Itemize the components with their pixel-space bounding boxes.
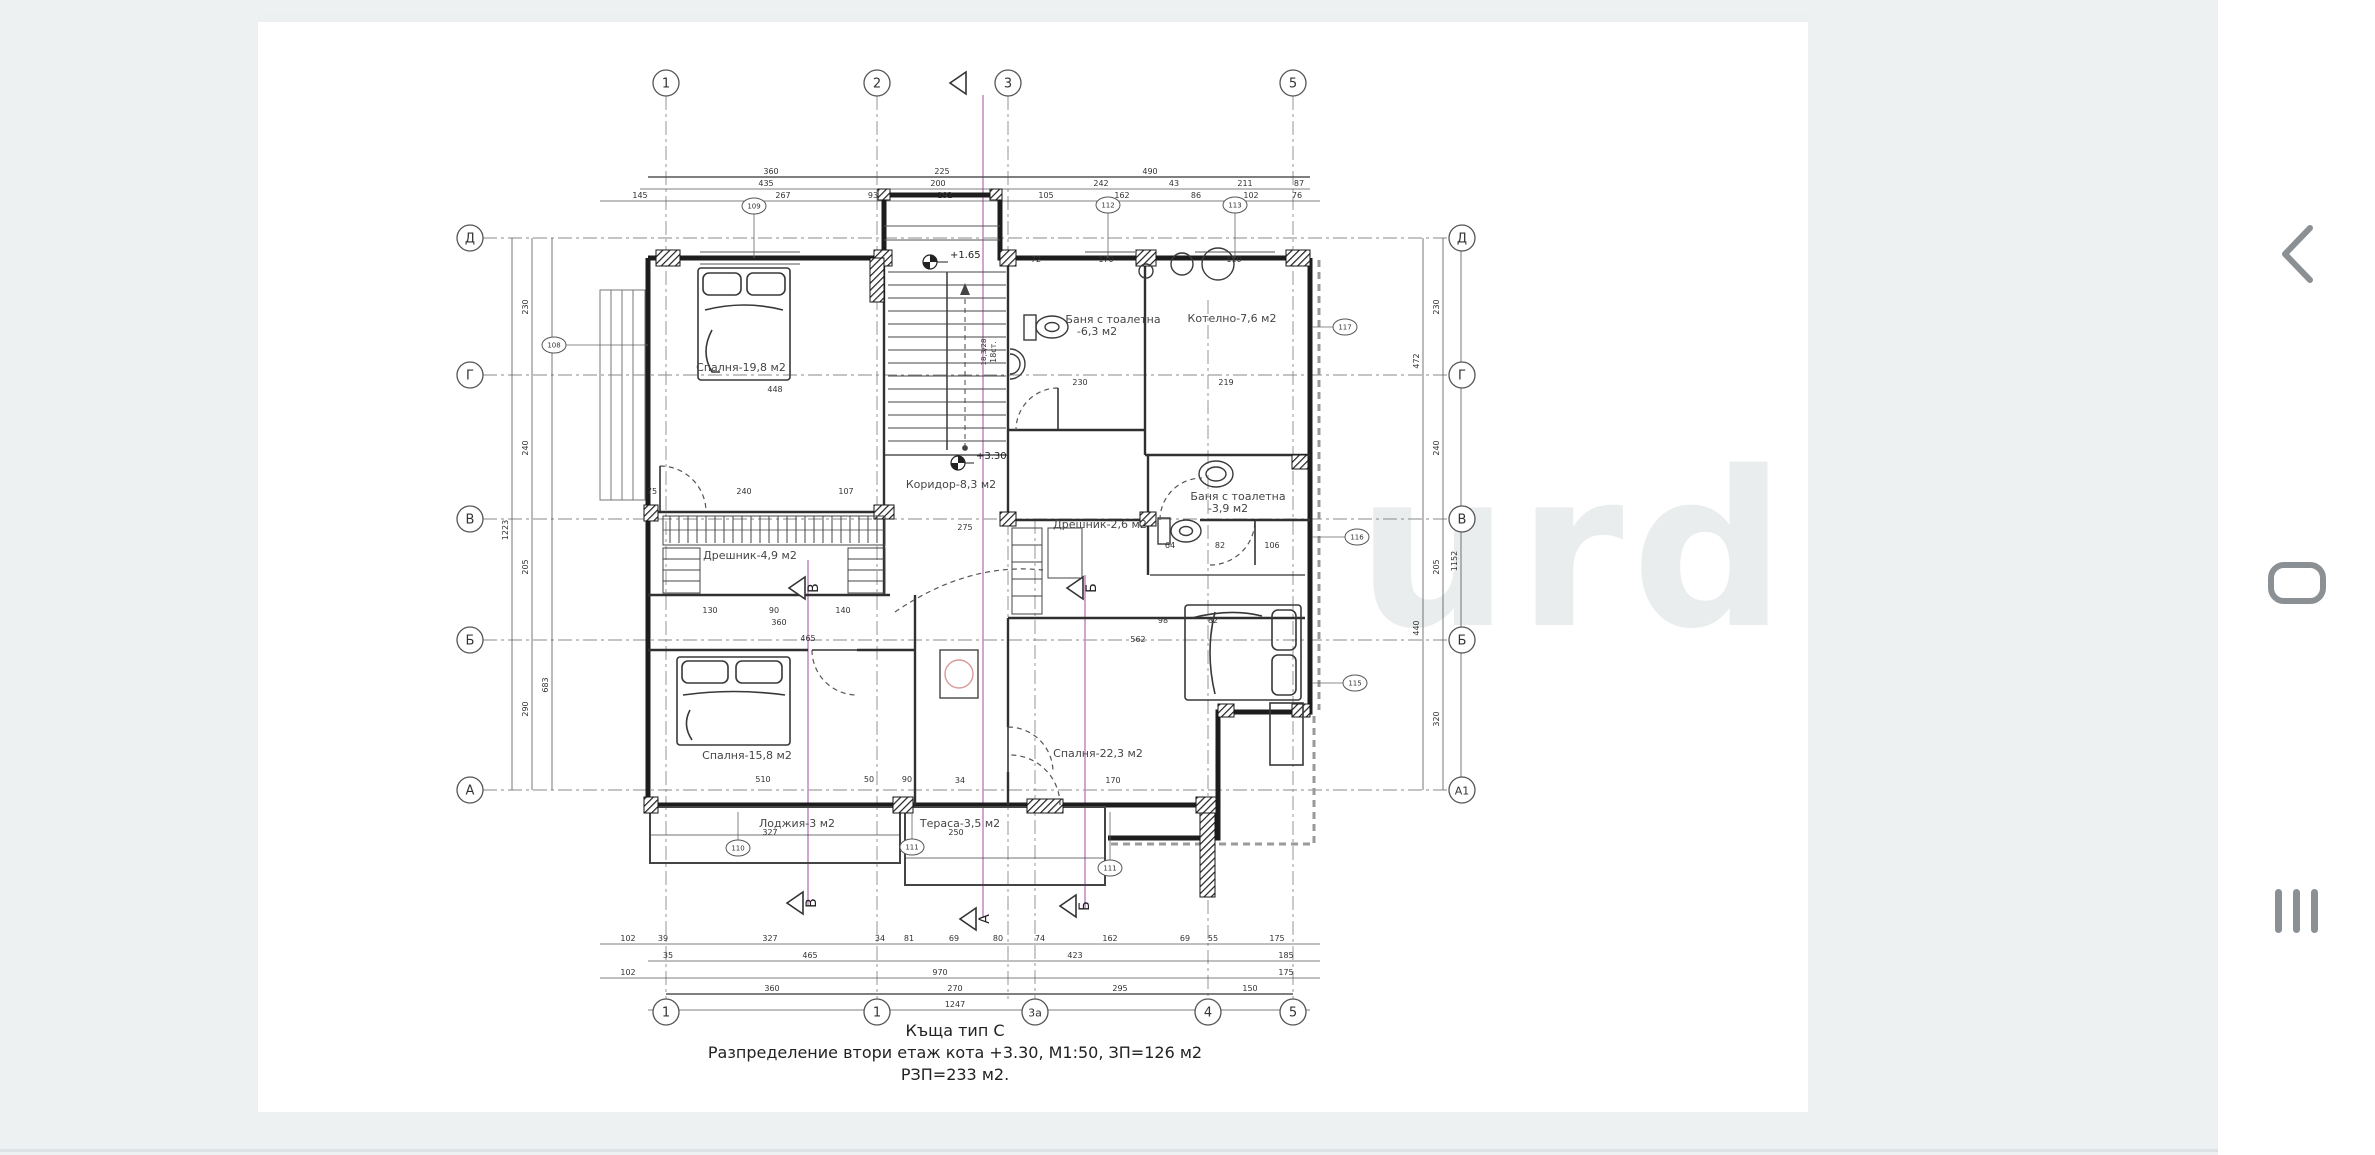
room-label: Спалня-19,8 м2	[696, 361, 786, 374]
dimension-label: 102	[1243, 191, 1258, 200]
dimension-label: 76	[1292, 191, 1302, 200]
left-side-detail	[600, 290, 645, 500]
svg-text:А1: А1	[1455, 785, 1470, 798]
svg-text:Д: Д	[465, 232, 475, 247]
dimension-label: 175	[1269, 934, 1284, 943]
grid-bubble: В	[457, 506, 483, 532]
dimension-label: 35	[663, 951, 673, 960]
room-label: Дрешник-4,9 м2	[703, 549, 797, 562]
dimension-label: 211	[1237, 179, 1252, 188]
dimension-label: 34	[955, 776, 965, 785]
dimension-label: 55	[1208, 934, 1218, 943]
grid-bubble: 1	[864, 999, 890, 1025]
dimension-label: 87	[1294, 179, 1304, 188]
svg-text:В: В	[466, 513, 475, 528]
svg-text:115: 115	[1348, 680, 1361, 688]
grid-bubble: 5	[1280, 999, 1306, 1025]
svg-text:Б: Б	[1084, 583, 1100, 593]
home-square-icon	[2267, 561, 2327, 605]
dimension-label: 295	[1112, 984, 1127, 993]
dimension-label: 1223	[501, 520, 510, 540]
window-tag: 110	[726, 812, 750, 856]
dimension-label: 205	[1432, 559, 1441, 574]
dimension-label: 970	[932, 968, 947, 977]
grid-bubble: 1	[653, 999, 679, 1025]
svg-text:5: 5	[1289, 1006, 1297, 1021]
drawing-caption: Къща тип С Разпределение втори етаж кота…	[708, 1021, 1202, 1084]
room-label: Коридор-8,3 м2	[906, 478, 996, 491]
window-tag: 109	[742, 198, 766, 258]
structural-columns	[644, 189, 1310, 897]
dimension-label: 105	[1038, 191, 1053, 200]
sink-bath-39	[1199, 461, 1233, 487]
dimension-label: 69	[949, 934, 959, 943]
closet-dressing-26	[1012, 528, 1082, 614]
room-label: Дрешник-2,6 м2	[1053, 518, 1147, 531]
dimension-label: 106	[1264, 541, 1279, 550]
dimension-label: 81	[904, 934, 914, 943]
section-marker: Б	[1060, 895, 1093, 917]
dimension-label: 327	[762, 828, 777, 837]
room-label: Котелно-7,6 м2	[1188, 312, 1277, 325]
dimension-label: 250	[948, 828, 963, 837]
balcony-outlines	[650, 807, 1105, 885]
svg-text:3: 3	[1004, 77, 1012, 92]
dimension-label: 74	[1035, 934, 1045, 943]
dimension-label: 448	[767, 385, 782, 394]
watermark-text: urd	[1357, 425, 1794, 676]
recents-bars-icon	[2271, 887, 2323, 935]
dimension-label: 107	[838, 487, 853, 496]
dimension-label: 360	[771, 618, 786, 627]
dimension-label: 465	[800, 634, 815, 643]
caption-area: РЗП=233 м2.	[901, 1065, 1009, 1084]
grid-bubble: 5	[1280, 70, 1306, 96]
grid-bubble: В	[1449, 506, 1475, 532]
svg-text:Д: Д	[1457, 232, 1467, 247]
dimension-label: 240	[736, 487, 751, 496]
dimension-label: 162	[1102, 934, 1117, 943]
svg-text:108: 108	[547, 342, 560, 350]
section-marker: В	[787, 892, 820, 914]
svg-text:+3.30: +3.30	[976, 451, 1007, 462]
svg-text:А: А	[977, 914, 993, 924]
grid-bubbles: 1235113а45ДГВБАДГВБА1	[457, 70, 1475, 1025]
svg-text:В: В	[1458, 513, 1467, 528]
svg-text:116: 116	[1350, 534, 1364, 542]
dimension-label: 290	[521, 701, 530, 716]
dimension-label: 440	[1412, 620, 1421, 635]
dimension-label: 230	[1072, 378, 1087, 387]
section-marker	[950, 72, 966, 94]
svg-text:В: В	[806, 583, 822, 593]
grid-lines	[483, 96, 1449, 999]
svg-text:109: 109	[747, 203, 760, 211]
svg-text:113: 113	[1228, 202, 1241, 210]
dimension-label: 562	[1130, 635, 1145, 644]
grid-bubble: А1	[1449, 777, 1475, 803]
dimension-label: 472	[1412, 353, 1421, 368]
svg-text:112: 112	[1101, 202, 1114, 210]
dimension-label: 230	[1432, 299, 1441, 314]
toilet-bath-63	[1024, 315, 1068, 340]
nav-home-button[interactable]	[2257, 551, 2337, 615]
nav-recents-button[interactable]	[2261, 877, 2333, 945]
dimension-label: 240	[521, 440, 530, 455]
bottom-edge-line	[0, 1149, 2218, 1152]
dimension-label: 72	[1031, 255, 1041, 264]
svg-text:110: 110	[731, 845, 744, 853]
dimension-label: 90	[769, 606, 779, 615]
nav-back-button[interactable]	[2269, 213, 2325, 295]
boiler-equipment	[1171, 248, 1234, 280]
dimension-label: 140	[835, 606, 850, 615]
dimension-label: 130	[702, 606, 717, 615]
dimension-label: 205	[521, 559, 530, 574]
dimension-label: 90	[902, 775, 912, 784]
svg-text:Б: Б	[1077, 901, 1093, 911]
window-tag: 111	[1098, 812, 1122, 876]
svg-text:Б: Б	[1458, 634, 1467, 649]
dimension-label: 82	[1208, 616, 1218, 625]
svg-text:5: 5	[1289, 77, 1297, 92]
window-tag: 116	[1312, 529, 1369, 545]
svg-text:В: В	[804, 898, 820, 908]
dimension-label: 267	[775, 191, 790, 200]
dimension-label: 75	[647, 487, 657, 496]
screenshot-root: { "page": { "bg_color": "#eef1f2", "doc_…	[0, 0, 2375, 1155]
section-lines	[808, 95, 1085, 918]
dimension-label: 39	[658, 934, 668, 943]
dimension-label: 320	[1432, 711, 1441, 726]
grid-bubble: Г	[457, 362, 483, 388]
dimension-label: 192	[937, 191, 952, 200]
dimension-label: 110	[1226, 255, 1241, 264]
svg-text:Г: Г	[466, 369, 474, 384]
grid-bubble: Д	[457, 225, 483, 251]
dimension-label: 69	[1180, 934, 1190, 943]
dimension-label: 50	[864, 775, 874, 784]
dimension-label: 170	[1098, 255, 1113, 264]
level-marker-floor: +3.30	[951, 451, 1007, 470]
window-tag: 113	[1223, 197, 1247, 258]
room-label: -6,3 м2	[1077, 325, 1117, 338]
grid-bubble: 1	[653, 70, 679, 96]
document-top-edge	[258, 14, 1808, 22]
grid-bubble: А	[457, 777, 483, 803]
dimension-label: 225	[934, 167, 949, 176]
dimension-label: 185	[1278, 951, 1293, 960]
svg-text:3а: 3а	[1028, 1007, 1042, 1020]
dimension-label: 242	[1093, 179, 1108, 188]
dimension-label: 423	[1067, 951, 1082, 960]
svg-text:Г: Г	[1458, 369, 1466, 384]
level-marker-upper: +1.65	[923, 250, 981, 269]
bed-bedroom-22	[1185, 605, 1303, 765]
dimension-label: 230	[521, 299, 530, 314]
dimension-label: 102	[620, 934, 635, 943]
dimension-label: 200	[930, 179, 945, 188]
svg-text:1: 1	[662, 1006, 670, 1021]
floor-plan-drawing: urd	[258, 14, 1808, 1112]
dimension-label: 145	[632, 191, 647, 200]
svg-text:1: 1	[873, 1006, 881, 1021]
grid-bubble: 3а	[1022, 999, 1048, 1025]
dimension-label: 510	[755, 775, 770, 784]
svg-text:111: 111	[905, 844, 918, 852]
dimension-label: 43	[1169, 179, 1179, 188]
dimension-label: 82	[1215, 541, 1225, 550]
dimension-label: 1247	[945, 1000, 965, 1009]
dimension-label: 102	[620, 968, 635, 977]
svg-text:117: 117	[1338, 324, 1351, 332]
dimension-label: 98	[1158, 616, 1168, 625]
grid-bubble: 2	[864, 70, 890, 96]
dimension-label: 327	[762, 934, 777, 943]
caption-title: Къща тип С	[905, 1021, 1004, 1040]
caption-subtitle: Разпределение втори етаж кота +3.30, М1:…	[708, 1043, 1202, 1062]
svg-text:А: А	[466, 784, 475, 799]
android-nav-bar	[2218, 0, 2375, 1155]
room-label: -3,9 м2	[1208, 502, 1248, 515]
dimension-label: 270	[947, 984, 962, 993]
grid-bubble: Б	[457, 627, 483, 653]
dimension-label: 170	[1105, 776, 1120, 785]
door-leaves	[660, 388, 1255, 772]
svg-text:Б: Б	[466, 634, 475, 649]
dimension-label: 360	[764, 984, 779, 993]
window-tag: 112	[1096, 197, 1120, 258]
door-swings	[660, 388, 1255, 805]
shaft-appliance	[940, 650, 978, 698]
grid-bubble: Г	[1449, 362, 1475, 388]
room-labels: Спалня-19,8 м2Баня с тоалетна-6,3 м2Коте…	[696, 312, 1285, 830]
back-chevron-icon	[2279, 223, 2315, 285]
room-label: Спалня-15,8 м2	[702, 749, 792, 762]
dimension-label: 86	[1191, 191, 1201, 200]
svg-text:4: 4	[1204, 1006, 1212, 1021]
dimension-label: 93	[868, 191, 878, 200]
dimension-label: 435	[758, 179, 773, 188]
dimension-label: 490	[1142, 167, 1157, 176]
grid-bubble: Д	[1449, 225, 1475, 251]
section-marker: А	[960, 908, 993, 930]
stair-count-label: 18ст.	[989, 341, 998, 363]
grid-bubble: Б	[1449, 627, 1475, 653]
grid-bubble: 4	[1195, 999, 1221, 1025]
dimension-label: 240	[1432, 440, 1441, 455]
dimension-label: 150	[1242, 984, 1257, 993]
section-marker: Б	[1067, 577, 1100, 599]
dimension-label: 683	[541, 677, 550, 692]
dimension-label: 465	[802, 951, 817, 960]
room-label: Спалня-22,3 м2	[1053, 747, 1143, 760]
dimension-label: 360	[763, 167, 778, 176]
dimension-label: 64	[1165, 541, 1175, 550]
dimension-label: 275	[957, 523, 972, 532]
svg-text:2: 2	[873, 77, 881, 92]
svg-text:1: 1	[662, 77, 670, 92]
dimension-label: 162	[1114, 191, 1129, 200]
svg-text:+1.65: +1.65	[950, 250, 981, 261]
svg-text:111: 111	[1103, 865, 1116, 873]
grid-bubble: 3	[995, 70, 1021, 96]
dimension-label: 219	[1218, 378, 1233, 387]
window-tag: 108	[542, 337, 648, 353]
window-tag: 115	[1312, 675, 1367, 691]
dimension-label: 1152	[1450, 551, 1459, 571]
stair-step-label: 18,3/28	[980, 339, 988, 366]
dimension-label: 80	[993, 934, 1003, 943]
floor-plan-document[interactable]: urd	[258, 14, 1808, 1112]
dimension-label: 175	[1278, 968, 1293, 977]
dimension-label: 34	[875, 934, 885, 943]
bed-bedroom-15	[677, 657, 790, 745]
